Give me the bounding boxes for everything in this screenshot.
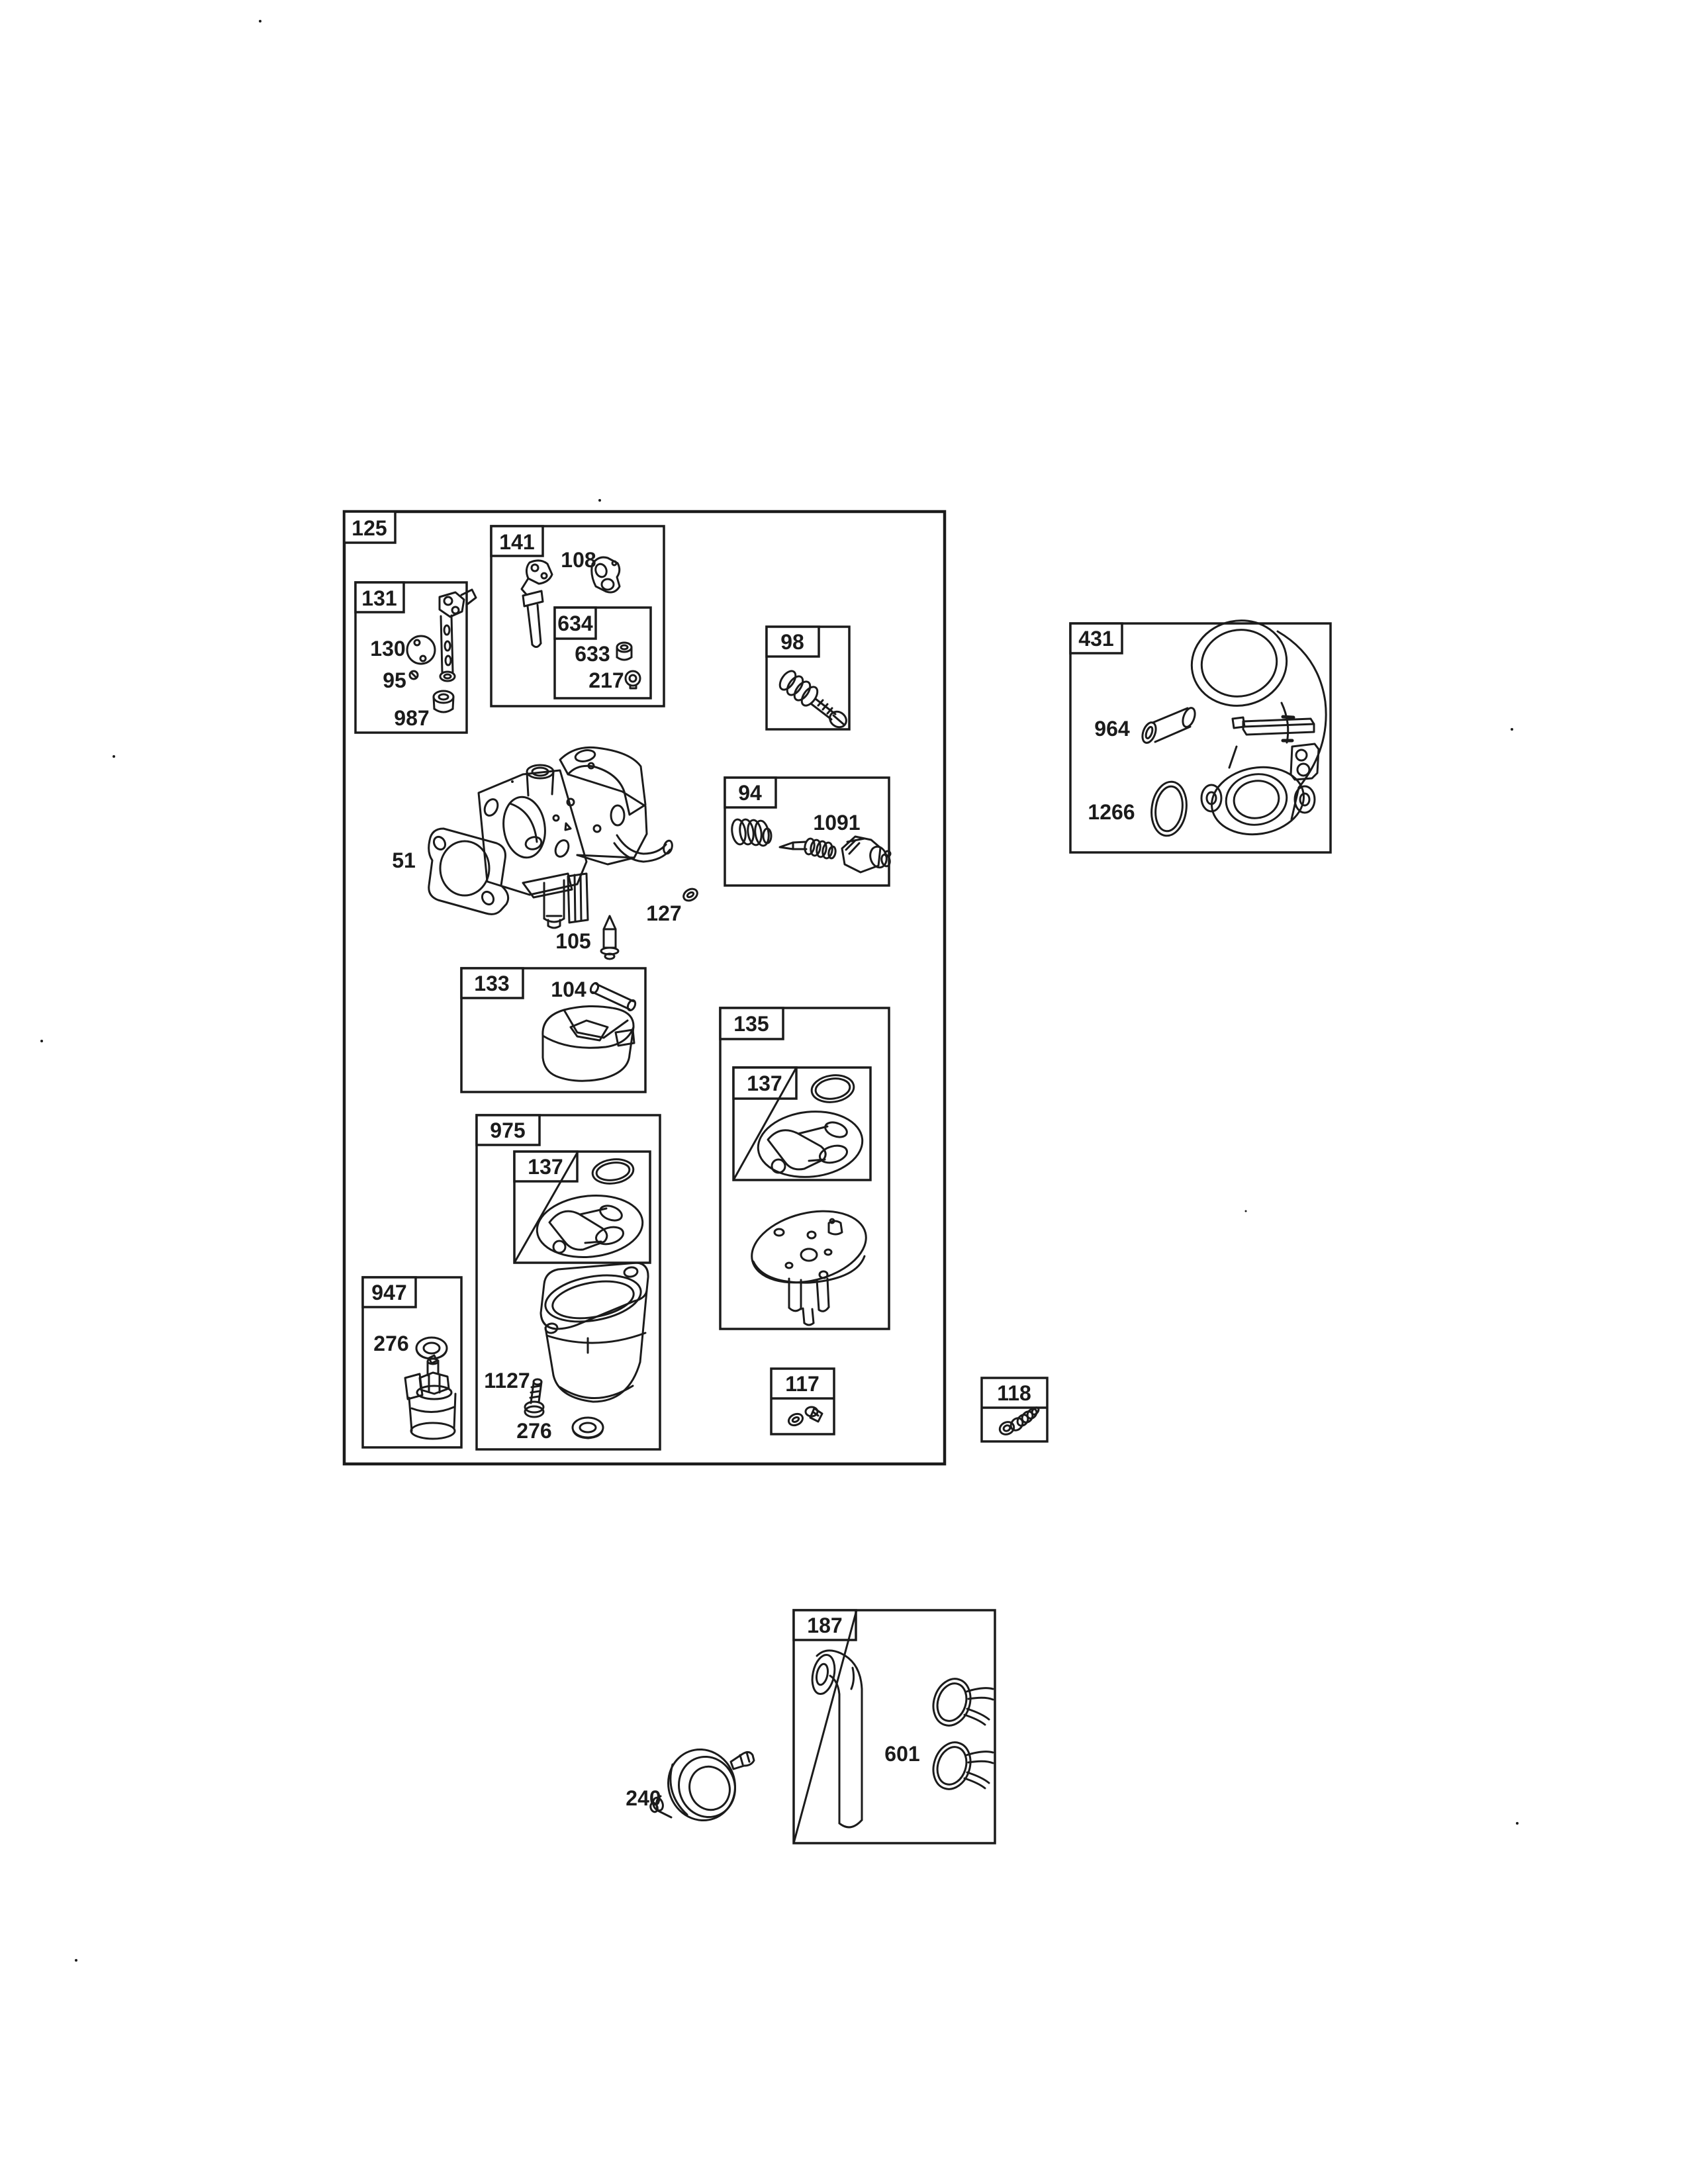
intake-elbow-drawing (1184, 612, 1326, 1211)
part-label-108: 108 (561, 548, 596, 572)
callout-94: 94 (738, 781, 762, 805)
callout-431: 431 (1078, 627, 1113, 651)
needle-screw-drawing (780, 838, 836, 859)
bushing-633-drawing (617, 643, 632, 660)
mixture-spring-drawing (730, 819, 771, 846)
mounting-gasket-51-drawing (429, 829, 508, 914)
callout-137b: 137 (528, 1155, 563, 1179)
callout-117: 117 (785, 1372, 820, 1396)
part-label-127: 127 (646, 901, 681, 925)
screw-95-drawing (410, 671, 418, 679)
part-label-95: 95 (383, 668, 406, 692)
choke-shaft-drawing (440, 590, 476, 681)
group-box-98: 98 (767, 627, 849, 729)
part-label-130: 130 (370, 637, 405, 660)
float-bowl-drawing (541, 1263, 648, 1402)
oring-127-drawing (681, 887, 699, 903)
bowl-washer-276-drawing (573, 1418, 603, 1438)
group-box-947: 947 (363, 1277, 461, 1447)
callout-137a: 137 (747, 1071, 782, 1095)
grommet-987-drawing (434, 691, 453, 712)
fuel-pipe-drawing (809, 1651, 862, 1827)
scan-specks (40, 20, 1519, 1962)
part-label-104: 104 (551, 978, 586, 1001)
part-label-1266: 1266 (1088, 800, 1135, 824)
callout-118: 118 (997, 1381, 1031, 1405)
group-box-94: 94 (725, 778, 889, 886)
fuel-solenoid-drawing (405, 1355, 455, 1439)
idle-screw-spring-drawing (776, 668, 849, 731)
hose-clamps-601-drawing (927, 1674, 993, 1794)
part-label-633: 633 (575, 642, 610, 666)
parts-diagram-canvas: 125 131 130 95 987 141 (0, 0, 1688, 2184)
callout-947: 947 (371, 1281, 406, 1304)
callout-141: 141 (499, 530, 534, 554)
callout-634: 634 (557, 612, 593, 635)
part-label-217: 217 (588, 668, 624, 692)
choke-plate-130-drawing (407, 636, 435, 664)
part-label-964: 964 (1094, 717, 1130, 741)
screw-kit-117-drawing (787, 1407, 822, 1428)
group-box-187: 187 (794, 1610, 995, 1843)
group-box-118: 118 (982, 1378, 1047, 1441)
spacer-tube-964-drawing (1140, 706, 1197, 745)
float-needle-105-drawing (601, 916, 618, 959)
callout-975: 975 (490, 1118, 525, 1142)
callout-125: 125 (352, 516, 387, 540)
bowl-diaphragm-137b-drawing (534, 1191, 646, 1262)
part-label-276-bowl: 276 (516, 1419, 551, 1443)
part-label-1091: 1091 (813, 811, 860, 835)
part-label-987: 987 (394, 706, 429, 730)
diagonal-strike-187 (794, 1610, 857, 1843)
group-box-117: 117 (771, 1369, 834, 1434)
throttle-lever-drawing (522, 561, 552, 647)
fuel-filter-240-drawing (649, 1740, 754, 1830)
part-label-276-solenoid: 276 (373, 1332, 408, 1355)
solenoid-washer-276-drawing (416, 1338, 447, 1359)
screw-kit-118-drawing (998, 1406, 1040, 1437)
carburetor-parts-diagram-page: 125 131 130 95 987 141 (0, 0, 1688, 2184)
float-133-drawing (543, 1006, 634, 1081)
seal-217-drawing (626, 671, 640, 688)
callout-131: 131 (361, 586, 397, 610)
pump-oring-137a-drawing (810, 1073, 856, 1105)
part-label-601: 601 (884, 1742, 919, 1766)
callout-98: 98 (780, 630, 804, 654)
part-label-51: 51 (392, 848, 416, 872)
part-label-240: 240 (626, 1786, 661, 1810)
pump-cover-135-drawing (744, 1200, 873, 1325)
pump-diaphragm-137a-drawing (755, 1107, 865, 1182)
part-label-105: 105 (555, 929, 590, 953)
oring-1266-drawing (1149, 780, 1190, 838)
callout-187: 187 (807, 1614, 842, 1637)
callout-135: 135 (733, 1012, 769, 1036)
callout-133: 133 (474, 972, 509, 995)
part-label-1127: 1127 (484, 1369, 530, 1392)
solenoid-1091-drawing (842, 837, 891, 872)
bowl-oring-137b-drawing (591, 1157, 635, 1186)
